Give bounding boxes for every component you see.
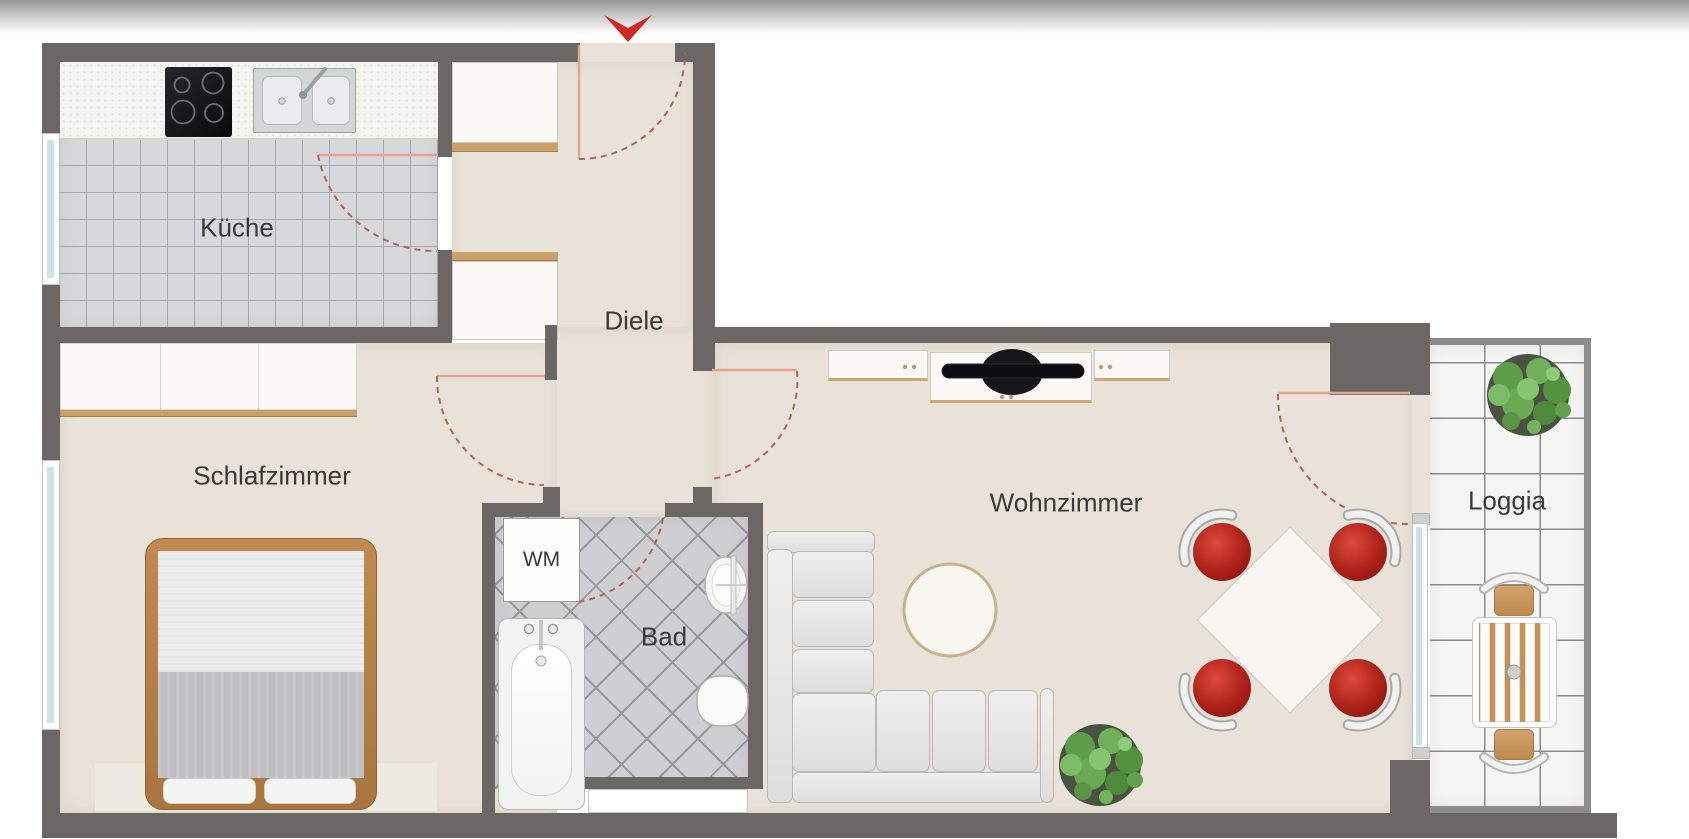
room-label-diele: Diele [604, 306, 663, 337]
wall-kitchen-bedroom [42, 327, 452, 343]
tv-sideboard-right [1094, 350, 1170, 381]
wall-pillar-living-door [693, 487, 712, 503]
wall-bath-right [748, 517, 763, 789]
room-label-wohnzimmer: Wohnzimmer [990, 488, 1143, 519]
washing-machine-label: WM [523, 548, 560, 572]
loggia-chair-bottom [1494, 729, 1534, 760]
sofa-corner [792, 693, 876, 772]
sofa-seat [932, 690, 986, 772]
wall-pillar-bath-door [543, 487, 560, 517]
hall-cabinet-top [452, 62, 558, 143]
stove [165, 67, 232, 137]
sofa-seat [792, 600, 874, 647]
wall-top-left [42, 43, 580, 62]
wall-bath-top-left [482, 503, 545, 517]
wall-living-top [715, 327, 1340, 343]
kitchen-counter [60, 62, 438, 140]
loggia-chair-top [1494, 585, 1534, 616]
wall-kitchen-right-upper [438, 62, 452, 157]
entrance-opening [580, 43, 675, 62]
wardrobe-divider [258, 343, 259, 410]
wardrobe-trim [60, 410, 357, 417]
wall-left-c [42, 730, 60, 813]
loggia-table-slat [1510, 623, 1520, 722]
loggia-table-slat [1525, 623, 1535, 722]
wall-bedroom-door [545, 325, 557, 380]
sofa-seat [792, 551, 874, 598]
bed-pillow-right [264, 778, 356, 804]
bed-pillow-left [163, 778, 256, 804]
hall-cabinet-bottom [452, 261, 558, 340]
tv-sideboard-center [930, 352, 1092, 403]
hall-cabinet-bottom-trim [452, 252, 558, 261]
page-top-shadow [0, 0, 1689, 34]
sofa-arm-right [1040, 688, 1054, 803]
sofa-back-bottom [792, 772, 1046, 803]
loggia-parapet-bottom [1430, 806, 1591, 813]
wall-top-entrance-pillar [675, 43, 715, 62]
hall-cabinet-top-trim [452, 143, 558, 152]
sink-basin-right [312, 76, 350, 125]
balcony-door-opening [1412, 395, 1430, 523]
loggia-table-slat [1495, 623, 1505, 722]
wall-kitchen-right-lower [438, 250, 452, 327]
loggia-window-sill-bottom [1412, 747, 1430, 759]
loggia-window-glass [1416, 527, 1422, 745]
room-label-schlafzimmer: Schlafzimmer [193, 461, 350, 492]
washing-machine: WM [503, 518, 580, 602]
sofa-back-left [767, 549, 793, 803]
loggia-parapet-right [1584, 338, 1591, 813]
wall-bath-bottom [585, 777, 748, 789]
kitchen-window-glass [47, 140, 54, 278]
sink-basin-left [262, 76, 302, 125]
loggia-table-slat [1540, 623, 1550, 722]
floor-plan: WM [0, 0, 1689, 839]
wall-bedroom-bath [482, 517, 495, 813]
wardrobe [60, 343, 357, 410]
room-label-bad: Bad [641, 622, 687, 653]
room-corridor-floor [545, 327, 715, 517]
room-label-kueche: Küche [200, 213, 274, 244]
wall-left-b [42, 285, 60, 460]
loggia-parapet-top [1430, 338, 1591, 345]
sofa-seat [792, 649, 874, 693]
wall-loggia-step [1390, 760, 1430, 813]
bed-blanket [158, 672, 364, 778]
bedroom-window-glass [47, 467, 54, 723]
wardrobe-divider [160, 343, 161, 410]
wall-block-loggia [1330, 323, 1430, 395]
wall-left-a [42, 62, 60, 133]
wall-bath-top-right [665, 503, 763, 517]
room-label-loggia: Loggia [1468, 486, 1546, 517]
bed-sheet [158, 551, 364, 672]
bath-window [588, 789, 748, 813]
loggia-table-slat [1480, 623, 1490, 722]
wall-bottom [42, 813, 1617, 838]
tv-sideboard-left [828, 350, 928, 381]
sofa-seat [876, 690, 930, 772]
sofa-seat [988, 690, 1038, 772]
wall-diele-right [693, 62, 715, 371]
bathtub-basin [511, 644, 572, 796]
